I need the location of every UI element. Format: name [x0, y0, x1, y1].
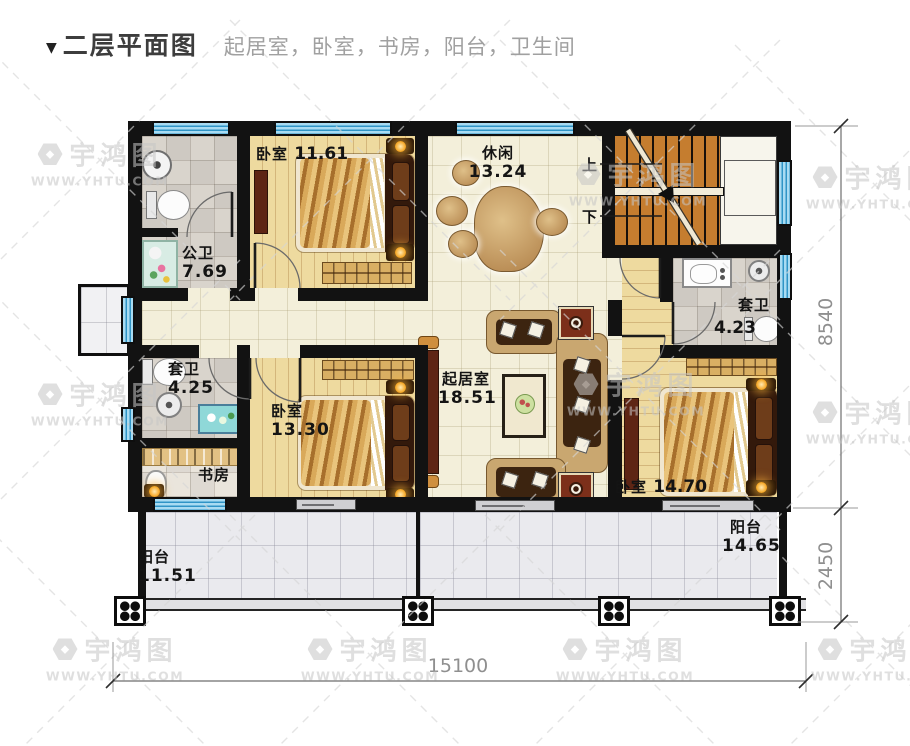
wall — [300, 345, 428, 358]
wall — [142, 345, 199, 358]
watermark-logo-icon: ◆ — [37, 143, 62, 165]
lamp-icon — [756, 379, 767, 390]
wall — [660, 345, 791, 358]
room-label-balcony-left: 阳台11.51 — [138, 548, 197, 586]
rock-stool — [536, 208, 568, 236]
rock-stool — [436, 196, 468, 226]
room-label-bedroom-mid: 卧室13.30 — [271, 402, 330, 440]
dimension-side-lower: 2450 — [815, 542, 837, 590]
sliding-door — [662, 500, 754, 511]
room-area-ensuite-right: 4.23 — [714, 318, 756, 338]
washer-icon — [142, 150, 172, 180]
flower-decor-icon — [515, 394, 535, 414]
column — [769, 596, 801, 626]
tv-cabinet — [254, 170, 268, 234]
watermark-logo-icon: ◆ — [812, 166, 837, 188]
sink-icon — [682, 258, 732, 288]
watermark: ◆宇鸿图 WWW.YHTU.COM — [811, 631, 910, 684]
watermark: ◆宇鸿图 WWW.YHTU.COM — [806, 394, 910, 447]
window — [777, 160, 792, 226]
room-label-study: 书房 — [198, 466, 230, 484]
room-label-public-bath: 公卫7.69 — [182, 244, 228, 282]
lamp-icon — [395, 247, 406, 258]
wall — [608, 300, 622, 336]
bed-blanket — [300, 158, 371, 248]
column — [598, 596, 630, 626]
wall — [602, 245, 791, 258]
wall — [415, 358, 428, 497]
nightstand — [386, 380, 414, 394]
wardrobe — [686, 358, 777, 376]
wall — [230, 288, 255, 301]
balcony-railing — [114, 598, 806, 611]
window — [153, 497, 227, 512]
wall — [660, 258, 673, 302]
window — [778, 253, 792, 300]
room-label-ensuite-left: 套卫4.25 — [168, 360, 214, 398]
shower-icon — [748, 260, 770, 282]
wall — [142, 438, 237, 448]
nightstand — [386, 138, 414, 154]
window — [274, 121, 392, 136]
bed-sheet — [371, 400, 385, 486]
bed — [296, 154, 414, 252]
stairs-down-label: 下 — [582, 206, 597, 227]
stairwell-void — [724, 160, 776, 216]
column — [402, 596, 434, 626]
side-table — [559, 307, 593, 339]
title-triangle-icon: ▼ — [46, 40, 57, 56]
room-label-ensuite-right: 套卫 — [738, 296, 770, 314]
dimension-side-upper: 8540 — [815, 298, 837, 346]
watermark-logo-icon: ◆ — [812, 401, 837, 423]
watermark: ◆宇鸿图 WWW.YHTU.COM — [806, 159, 910, 212]
coffee-table — [502, 374, 546, 438]
page-title: ▼ 二层平面图 起居室，卧室，书房，阳台，卫生间 — [46, 26, 576, 62]
lamp-icon — [756, 482, 767, 493]
dimension-bottom: 15100 — [428, 655, 488, 677]
wall — [237, 345, 250, 498]
basin-plants-icon — [142, 240, 178, 288]
window — [152, 121, 230, 136]
sofa — [556, 333, 608, 473]
wall — [415, 136, 428, 297]
wall — [237, 136, 250, 297]
floor-plan-page: { "title": { "marker": "▼", "text": "二层平… — [0, 0, 910, 746]
toilet-icon — [146, 190, 190, 220]
wall — [142, 288, 188, 301]
column — [114, 596, 146, 626]
room-label-balcony-right: 阳台14.65 — [722, 518, 770, 556]
nightstand — [746, 480, 776, 495]
watermark-logo-icon: ◆ — [307, 638, 332, 660]
bed-sheet — [734, 392, 748, 491]
watermark: ◆宇鸿图 WWW.YHTU.COM — [301, 631, 439, 684]
wardrobe — [322, 262, 412, 284]
lamp-icon — [395, 141, 406, 152]
room-label-living: 起居室18.51 — [438, 370, 494, 408]
sliding-door — [475, 500, 555, 511]
window — [121, 407, 135, 442]
floor-lamp — [144, 484, 164, 498]
watermark-logo-icon: ◆ — [37, 383, 62, 405]
wall — [298, 288, 428, 301]
wall — [142, 228, 178, 237]
balcony-side-wall — [779, 512, 787, 604]
rock-stool — [448, 230, 478, 258]
bed-headboard — [385, 154, 415, 252]
bed-headboard — [385, 396, 414, 490]
sofa — [486, 310, 562, 354]
room-label-leisure: 休闲13.24 — [468, 144, 528, 182]
title-text: 二层平面图 — [63, 26, 198, 62]
window — [121, 296, 135, 344]
stair-handrail — [604, 187, 724, 196]
watermark: ◆宇鸿图 WWW.YHTU.COM — [46, 631, 184, 684]
bed-sheet — [370, 158, 384, 248]
watermark: ◆宇鸿图 WWW.YHTU.COM — [556, 631, 694, 684]
watermark-logo-icon: ◆ — [52, 638, 77, 660]
lamp-icon — [149, 486, 160, 497]
balcony-divider — [416, 512, 420, 598]
lamp-icon — [395, 382, 406, 393]
watermark-logo-icon: ◆ — [562, 638, 587, 660]
title-subtitle: 起居室，卧室，书房，阳台，卫生间 — [224, 31, 576, 61]
wall — [602, 136, 615, 245]
stairs-up-label: 上 — [582, 154, 597, 175]
watermark-logo-icon: ◆ — [817, 638, 842, 660]
sliding-door — [296, 499, 356, 510]
bathtub-icon — [198, 404, 240, 434]
bookshelf-desk — [142, 448, 239, 466]
nightstand — [746, 378, 776, 391]
room-label-bedroom-top: 卧室 11.61 — [256, 144, 348, 164]
window — [455, 121, 575, 136]
wardrobe — [322, 360, 414, 380]
room-label-bedroom-right: 卧室 14.70 — [615, 477, 707, 497]
nightstand — [386, 244, 414, 261]
